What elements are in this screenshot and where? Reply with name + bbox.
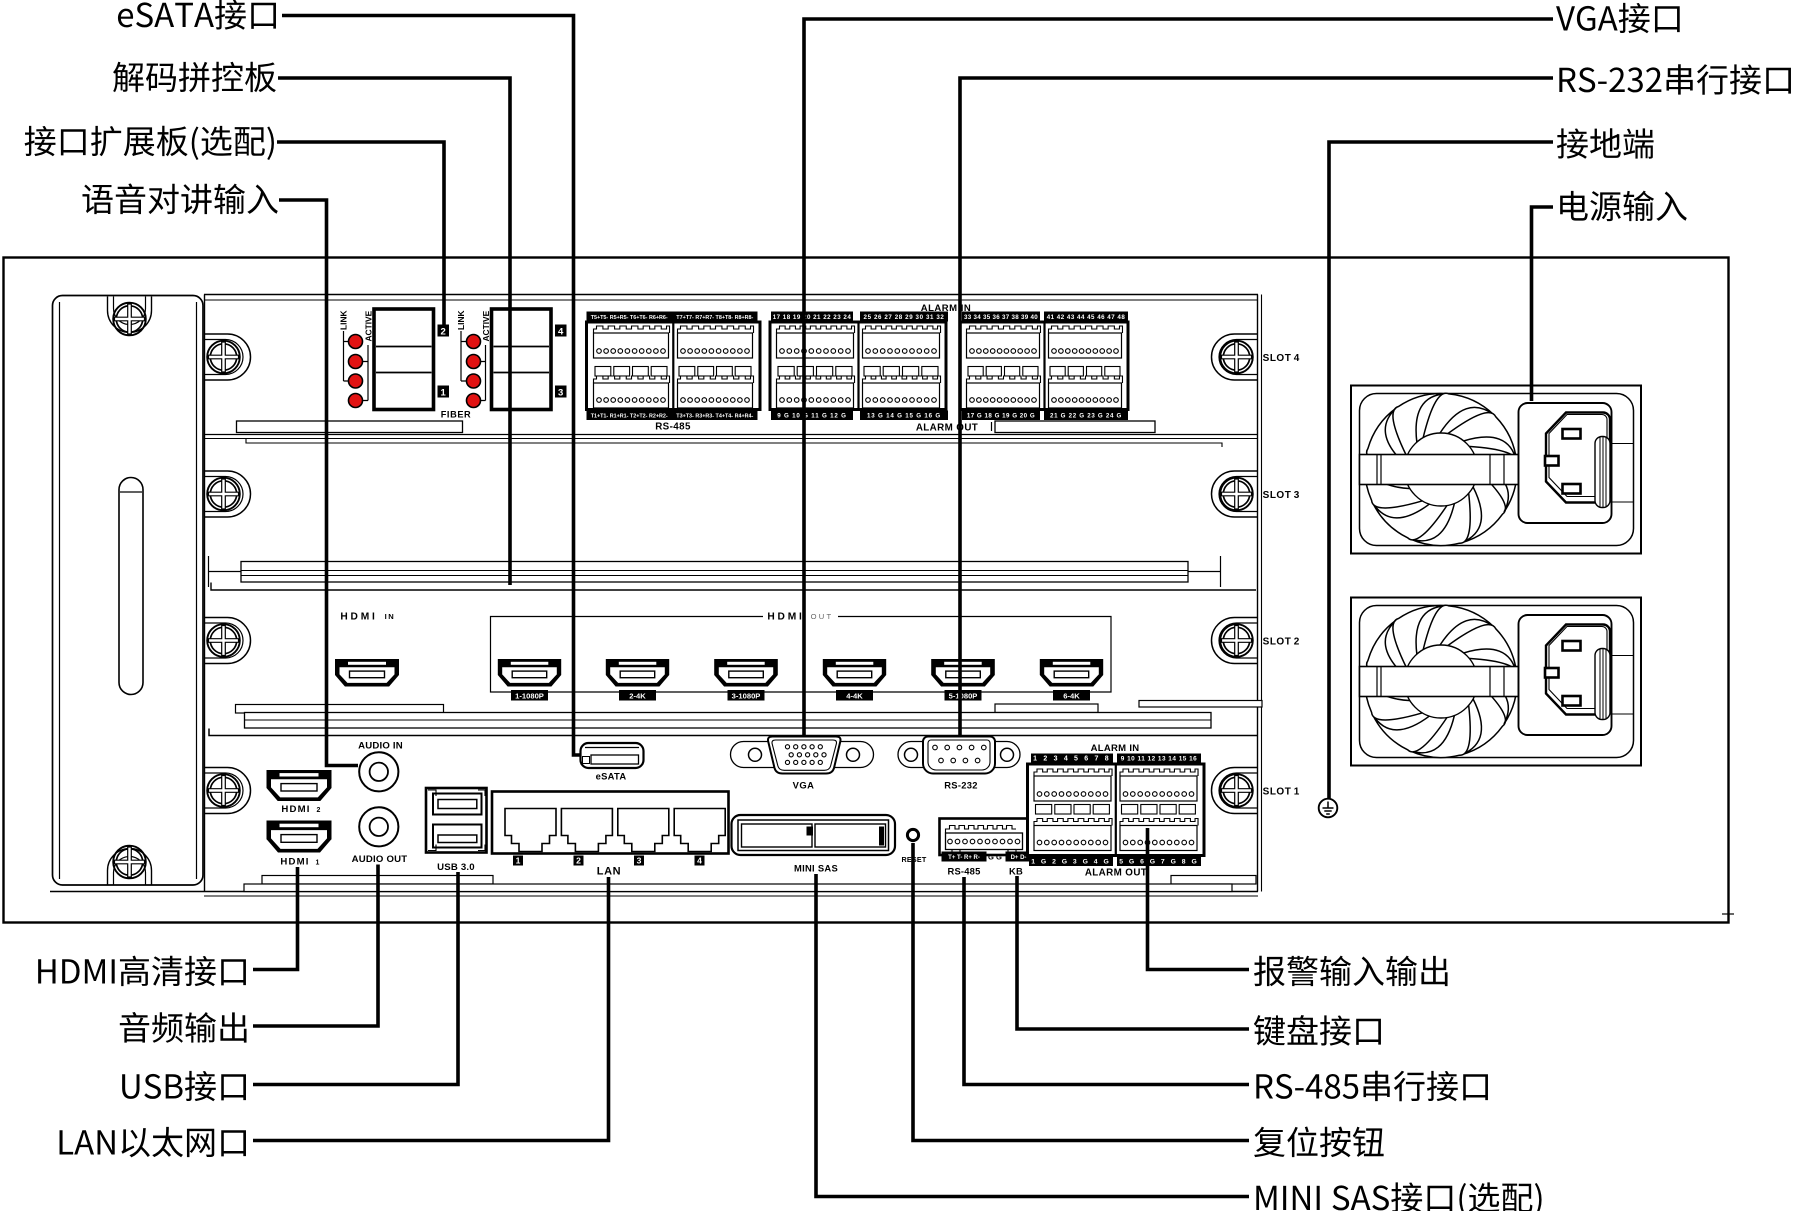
svg-text:ACTIVE: ACTIVE xyxy=(481,310,491,341)
svg-text:3: 3 xyxy=(558,387,563,398)
svg-text:2: 2 xyxy=(441,326,446,337)
svg-text:1 G 2 G 3 G 4 G: 1 G 2 G 3 G 4 G xyxy=(1031,858,1111,865)
svg-text:5-1080P: 5-1080P xyxy=(949,692,978,701)
svg-text:4: 4 xyxy=(1294,353,1300,364)
svg-text:T5+T5- R5+R5- T6+T6- R6+R6-: T5+T5- R5+R5- T6+T6- R6+R6- xyxy=(591,315,668,321)
svg-text:eSATA: eSATA xyxy=(596,771,627,782)
svg-text:1: 1 xyxy=(316,860,320,867)
svg-text:HDMI: HDMI xyxy=(280,857,309,868)
svg-text:RS-232: RS-232 xyxy=(944,780,978,791)
svg-text:25 26 27 28 29 30 31 32: 25 26 27 28 29 30 31 32 xyxy=(864,314,945,321)
svg-text:17 18 19 20 21 22 23 24: 17 18 19 20 21 22 23 24 xyxy=(773,314,852,321)
svg-text:ACTIVE: ACTIVE xyxy=(364,310,374,341)
svg-text:1: 1 xyxy=(516,856,521,866)
svg-text:T1+T1- R1+R1- T2+T2- R2+R2-: T1+T1- R1+R1- T2+T2- R2+R2- xyxy=(591,413,668,419)
svg-text:RS-485: RS-485 xyxy=(655,422,691,433)
svg-text:LINK: LINK xyxy=(456,310,466,330)
svg-text:OUT: OUT xyxy=(811,612,834,621)
svg-text:ALARM OUT: ALARM OUT xyxy=(1085,868,1147,879)
svg-text:21 G 22 G 23 G 24 G: 21 G 22 G 23 G 24 G xyxy=(1050,412,1122,419)
svg-text:9 G 10 G 11 G 12 G: 9 G 10 G 11 G 12 G xyxy=(777,412,846,419)
svg-text:1-1080P: 1-1080P xyxy=(515,692,544,701)
svg-text:2: 2 xyxy=(1294,637,1300,648)
svg-text:4-4K: 4-4K xyxy=(846,692,863,701)
svg-text:1: 1 xyxy=(1294,787,1300,798)
svg-text:HDMI: HDMI xyxy=(340,612,377,623)
svg-text:33 34 35 36 37 38 39 40: 33 34 35 36 37 38 39 40 xyxy=(964,314,1038,321)
svg-text:SLOT: SLOT xyxy=(1263,353,1292,364)
svg-text:SLOT: SLOT xyxy=(1263,637,1292,648)
svg-text:4: 4 xyxy=(558,326,564,337)
svg-text:IN: IN xyxy=(385,612,396,621)
svg-text:6-4K: 6-4K xyxy=(1063,692,1080,701)
svg-text:2-4K: 2-4K xyxy=(629,692,646,701)
svg-text:41 42 43 44 45 46 47 48: 41 42 43 44 45 46 47 48 xyxy=(1047,314,1126,321)
svg-text:ALARM IN: ALARM IN xyxy=(1091,743,1140,754)
svg-text:D+ D-: D+ D- xyxy=(1011,855,1027,861)
svg-text:T3+T3- R3+R3- T4+T4- R4+R4-: T3+T3- R3+R3- T4+T4- R4+R4- xyxy=(676,413,753,419)
svg-text:1: 1 xyxy=(441,387,447,398)
svg-text:LAN: LAN xyxy=(597,866,621,878)
svg-text:AUDIO OUT: AUDIO OUT xyxy=(352,854,408,865)
svg-text:ALARM OUT: ALARM OUT xyxy=(916,423,978,434)
svg-text:1 2 3 4 5 6 7 8: 1 2 3 4 5 6 7 8 xyxy=(1033,755,1111,762)
svg-text:LINK: LINK xyxy=(339,310,349,330)
svg-text:G G: G G xyxy=(988,853,1002,862)
svg-text:3: 3 xyxy=(637,856,642,866)
svg-text:2: 2 xyxy=(317,807,321,814)
svg-text:FIBER: FIBER xyxy=(441,410,472,420)
svg-text:VGA: VGA xyxy=(793,780,815,791)
svg-text:17 G 18 G 19 G 20 G: 17 G 18 G 19 G 20 G xyxy=(967,412,1035,419)
svg-text:13 G 14 G 15 G 16 G: 13 G 14 G 15 G 16 G xyxy=(867,412,941,419)
svg-text:3-1080P: 3-1080P xyxy=(732,692,761,701)
svg-text:9 10 11 12 13 14 15 16: 9 10 11 12 13 14 15 16 xyxy=(1121,755,1197,762)
svg-text:2: 2 xyxy=(576,856,581,866)
svg-text:3: 3 xyxy=(1294,490,1300,501)
svg-text:KB: KB xyxy=(1009,866,1023,877)
svg-text:T+ T- R+ R-: T+ T- R+ R- xyxy=(948,855,980,861)
svg-text:USB 3.0: USB 3.0 xyxy=(437,862,475,873)
svg-text:HDMI: HDMI xyxy=(767,612,804,623)
svg-text:MINI SAS: MINI SAS xyxy=(794,863,838,874)
svg-text:SLOT: SLOT xyxy=(1263,490,1292,501)
svg-text:AUDIO IN: AUDIO IN xyxy=(358,741,403,752)
svg-text:SLOT: SLOT xyxy=(1263,787,1292,798)
svg-text:HDMI: HDMI xyxy=(281,804,310,815)
svg-text:4: 4 xyxy=(697,856,702,866)
svg-text:RS-485: RS-485 xyxy=(948,866,981,877)
svg-text:T7+T7- R7+R7- T8+T8- R8+R8-: T7+T7- R7+R7- T8+T8- R8+R8- xyxy=(676,315,753,321)
svg-text:5 G 6 G 7 G 8 G: 5 G 6 G 7 G 8 G xyxy=(1119,858,1199,865)
